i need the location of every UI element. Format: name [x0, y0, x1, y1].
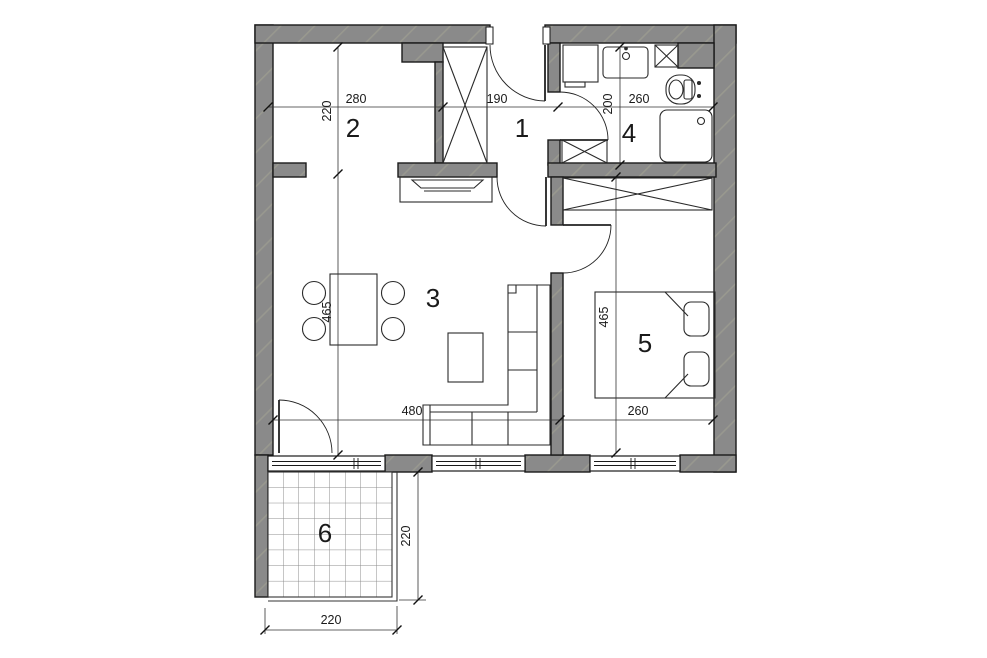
wall-bath-corner-block — [678, 43, 714, 68]
wall-bath-bedroom — [548, 163, 716, 177]
wall-tv — [398, 163, 497, 177]
balcony-floor — [268, 472, 397, 601]
wall-bottom-block-b — [525, 455, 590, 472]
tv — [412, 180, 483, 188]
hall-wardrobe — [443, 47, 487, 163]
wall-bottom-block-a — [385, 455, 432, 472]
room-label-living: 3 — [426, 283, 440, 313]
dim-label-465-living: 465 — [320, 302, 334, 323]
wall-exterior-left — [255, 25, 273, 455]
wall-closet-side — [435, 62, 443, 163]
dim-label-220-balcony-w: 220 — [321, 613, 342, 627]
dim-label-200: 200 — [601, 94, 615, 115]
room-label-balcony: 6 — [318, 518, 332, 548]
dim-label-280: 280 — [346, 92, 367, 106]
bedroom-wardrobe — [563, 178, 712, 210]
dim-label-260-bedroom: 260 — [628, 404, 649, 418]
dining-table — [330, 274, 377, 345]
windows — [268, 27, 680, 471]
dim-bathroom-vertical: 200 — [601, 43, 625, 170]
living-room-window — [432, 456, 525, 471]
wall-exterior-right — [714, 25, 736, 472]
wall-top-step — [402, 43, 443, 62]
wall-balcony-left — [255, 455, 268, 597]
dim-label-480: 480 — [402, 404, 423, 418]
room-label-bathroom: 4 — [622, 118, 636, 148]
bathroom-cabinet — [563, 45, 598, 87]
dim-label-190: 190 — [487, 92, 508, 106]
dim-label-260-bath: 260 — [629, 92, 650, 106]
bedroom-door — [563, 225, 611, 273]
wall-exterior-top-right — [545, 25, 736, 43]
ventilation-shaft — [655, 45, 678, 67]
tv-cabinet — [400, 177, 492, 202]
chair — [303, 282, 326, 305]
living-room-door — [497, 177, 546, 226]
wall-hall-bedroom — [551, 177, 563, 225]
dim-left-chain: 220 465 — [320, 43, 343, 460]
dim-bottom-chain: 480 260 — [269, 404, 718, 425]
pillow — [684, 302, 709, 336]
wall-living-bedroom — [551, 273, 563, 455]
balcony-door — [279, 400, 332, 453]
balcony-door-window — [268, 456, 385, 471]
shower — [660, 110, 712, 162]
wall-stub-kitchen — [273, 163, 306, 177]
dim-balcony-height: 220 — [399, 468, 426, 605]
sofa — [423, 285, 550, 445]
toilet — [666, 75, 701, 104]
floor-plan-page: 280 190 260 220 465 200 465 480 260 — [0, 0, 987, 658]
dim-label-465-bedroom: 465 — [597, 307, 611, 328]
floor-plan-drawing: 280 190 260 220 465 200 465 480 260 — [0, 0, 987, 658]
chair — [382, 282, 405, 305]
coffee-table — [448, 333, 483, 382]
wall-bottom-corner-right — [680, 455, 736, 472]
room-label-kitchen: 2 — [346, 113, 360, 143]
entrance-jamb-left — [486, 27, 493, 44]
chairs — [303, 282, 405, 341]
dim-balcony-width: 220 — [261, 606, 402, 635]
dim-label-220-balcony-h: 220 — [399, 526, 413, 547]
entrance-jamb-right — [543, 27, 550, 44]
dim-bedroom-vertical: 465 — [597, 173, 621, 458]
washing-machine — [562, 140, 607, 163]
bathroom-sink — [603, 47, 648, 78]
dim-label-220-kitchen: 220 — [320, 101, 334, 122]
wall-hall-bath-upper — [548, 43, 560, 92]
bed — [595, 292, 715, 398]
wall-exterior-top-left — [255, 25, 490, 43]
bedroom-window — [590, 456, 680, 471]
pillow — [684, 352, 709, 386]
chair — [382, 318, 405, 341]
wall-hall-bath-lower — [548, 140, 560, 165]
room-label-hall: 1 — [515, 113, 529, 143]
room-label-bedroom: 5 — [638, 328, 652, 358]
